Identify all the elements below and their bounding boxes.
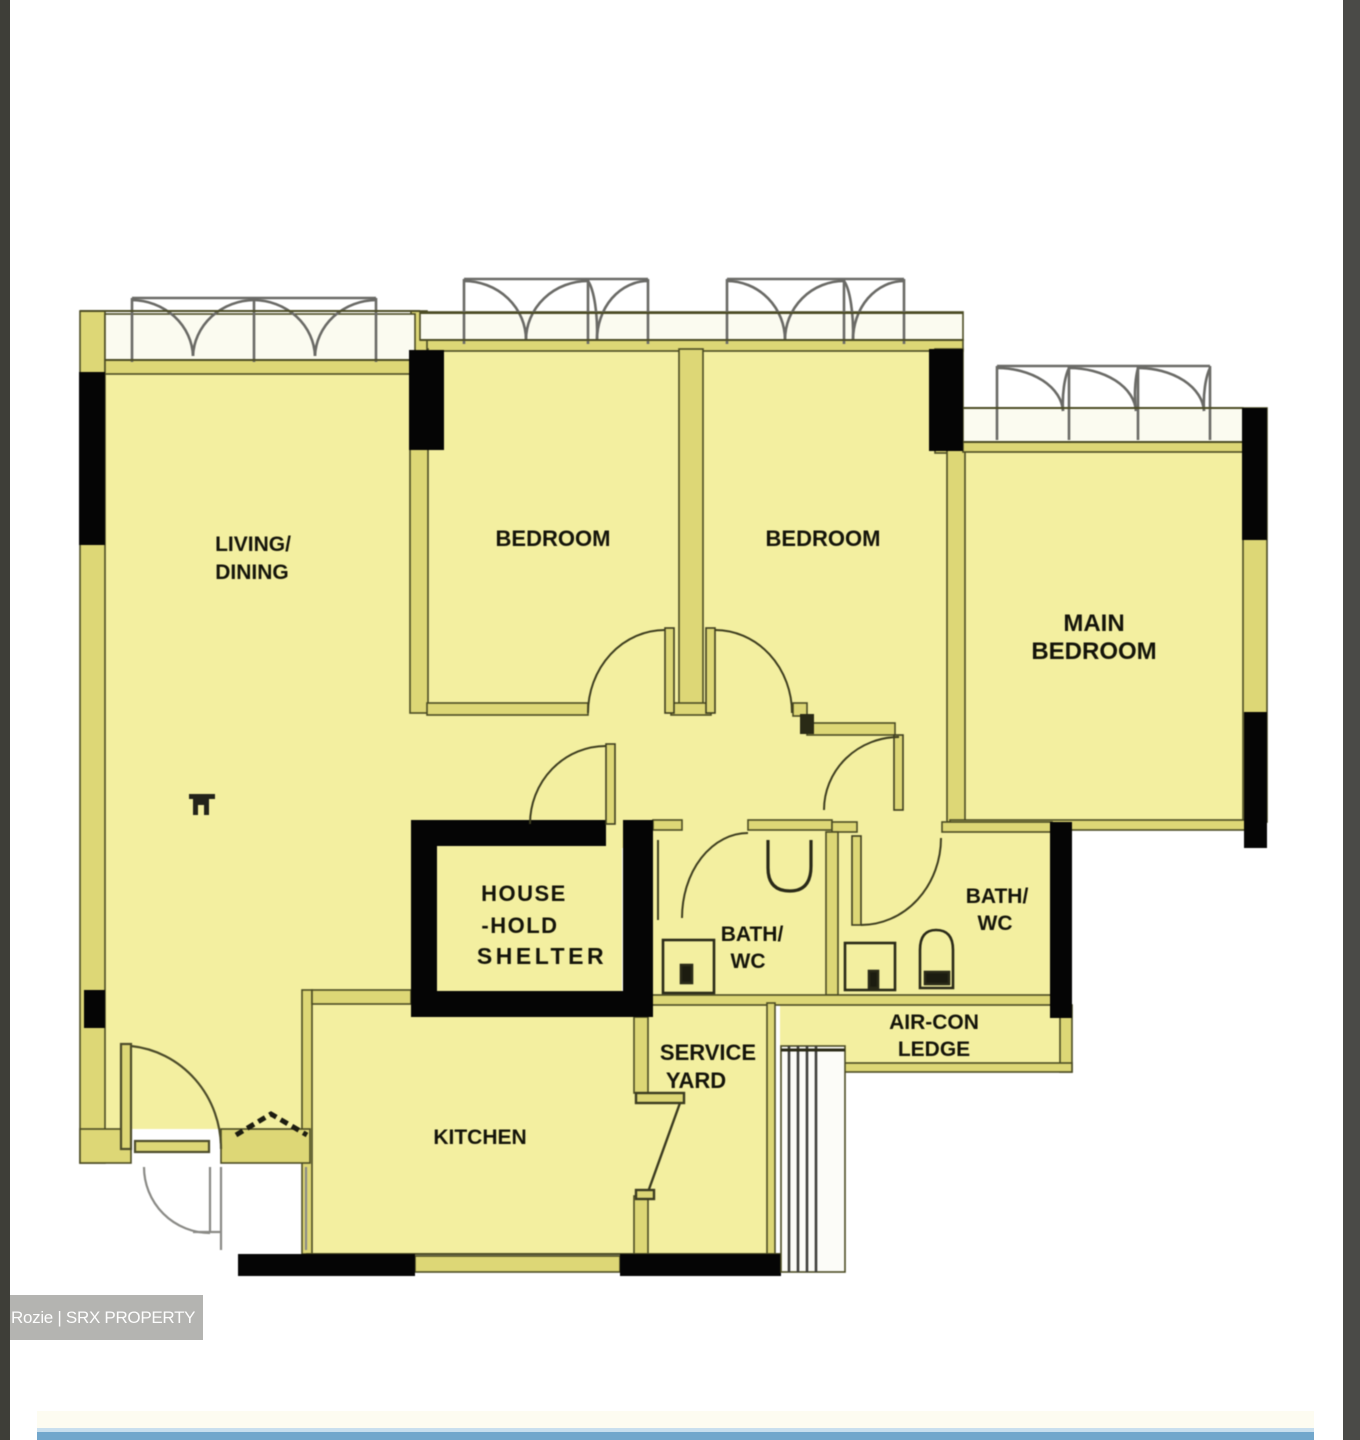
svg-text:WC: WC xyxy=(731,950,766,973)
svg-text:LEDGE: LEDGE xyxy=(898,1038,970,1061)
svg-text:KITCHEN: KITCHEN xyxy=(433,1126,526,1149)
svg-text:YARD: YARD xyxy=(666,1068,726,1093)
svg-text:HOUSE: HOUSE xyxy=(481,881,567,906)
svg-text:LIVING/: LIVING/ xyxy=(215,533,291,556)
svg-text:SHELTER: SHELTER xyxy=(477,943,607,969)
svg-text:BEDROOM: BEDROOM xyxy=(1031,638,1156,665)
svg-text:SERVICE: SERVICE xyxy=(660,1040,756,1065)
svg-text:BATH/: BATH/ xyxy=(966,885,1029,908)
svg-text:BEDROOM: BEDROOM xyxy=(766,526,881,551)
svg-text:MAIN: MAIN xyxy=(1063,610,1124,637)
svg-text:-HOLD: -HOLD xyxy=(481,913,558,938)
svg-text:WC: WC xyxy=(978,912,1013,935)
svg-text:DINING: DINING xyxy=(215,561,289,584)
svg-text:AIR-CON: AIR-CON xyxy=(889,1011,979,1034)
svg-text:BEDROOM: BEDROOM xyxy=(496,526,611,551)
svg-text:BATH/: BATH/ xyxy=(721,923,784,946)
